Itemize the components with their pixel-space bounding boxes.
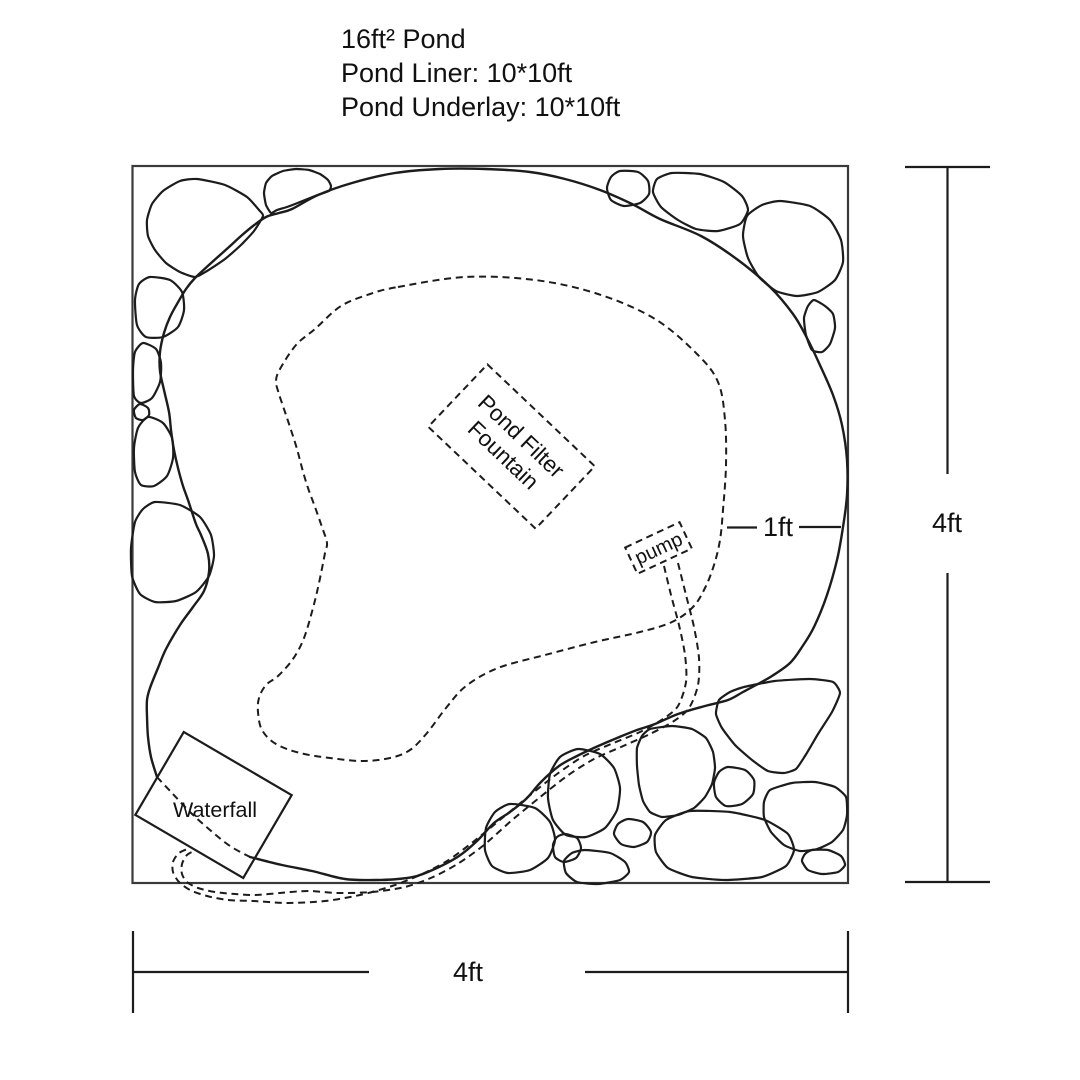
svg-text:4ft: 4ft [932, 508, 963, 538]
svg-text:1ft: 1ft [763, 512, 794, 542]
svg-text:4ft: 4ft [453, 957, 484, 987]
svg-text:Waterfall: Waterfall [173, 798, 257, 822]
